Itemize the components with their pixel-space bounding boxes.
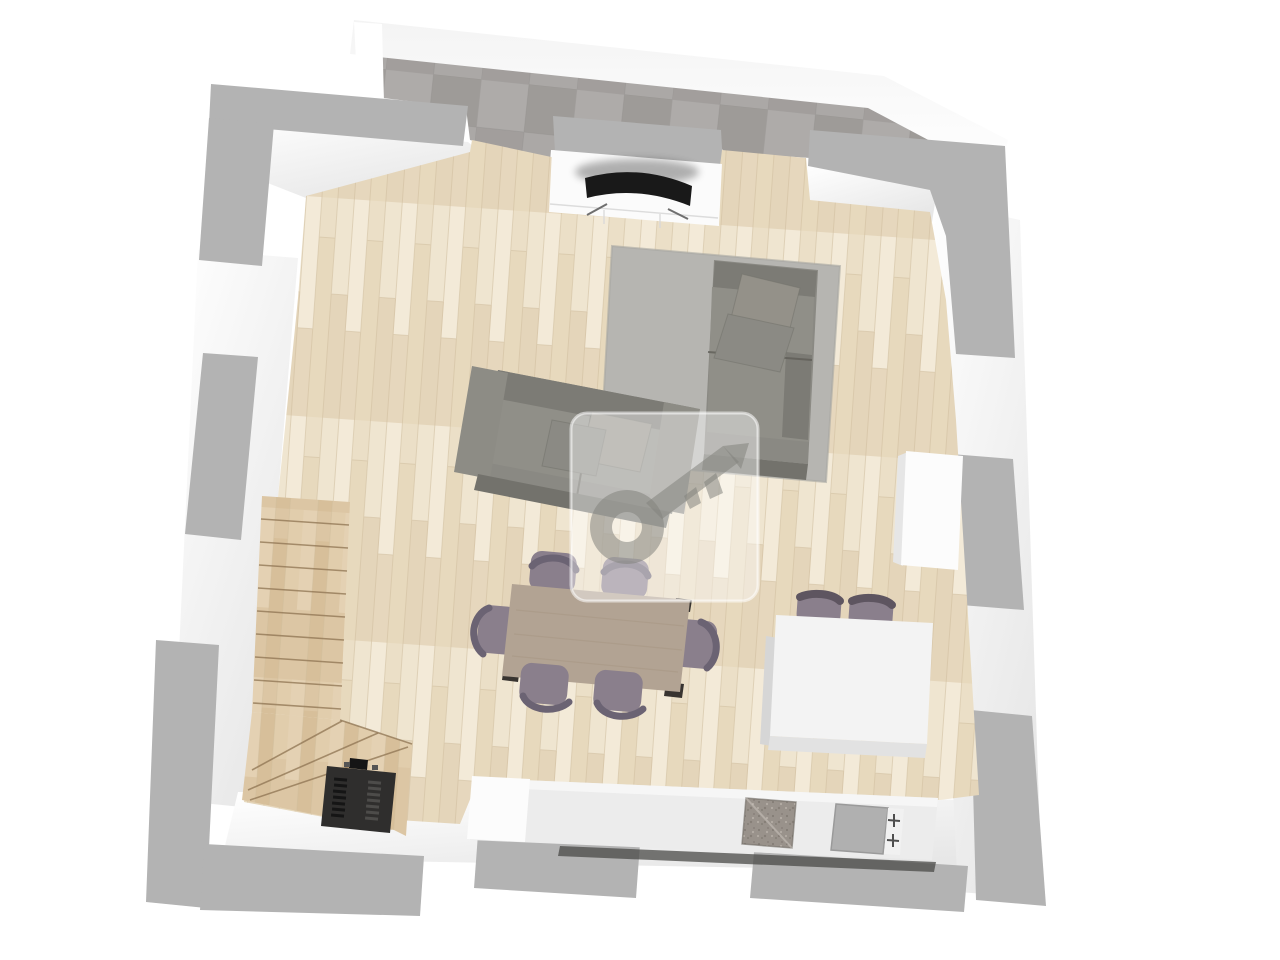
floor-plan-3d-render xyxy=(0,0,1280,960)
sofa-chaise-right-cushion xyxy=(782,352,812,440)
watermark-logo xyxy=(571,413,758,601)
tall-cabinet xyxy=(893,451,963,570)
stove-chimney xyxy=(349,758,368,770)
cabinet-top xyxy=(901,451,963,570)
wall-top-left-column xyxy=(199,118,274,266)
dining-chair-bottom-left xyxy=(518,662,569,709)
island-top xyxy=(770,615,933,744)
stove-body xyxy=(321,766,396,833)
cooktop xyxy=(831,804,888,854)
counter-end-cabinet xyxy=(467,776,530,842)
dining-chair-bottom-right xyxy=(592,669,643,716)
stair-flight xyxy=(252,496,350,720)
wall-bottom-left-strip xyxy=(200,844,424,916)
stove-knob xyxy=(344,762,350,767)
kitchen-island xyxy=(760,615,933,758)
stove-knob xyxy=(372,765,378,770)
terrace-left-wall xyxy=(354,22,384,102)
